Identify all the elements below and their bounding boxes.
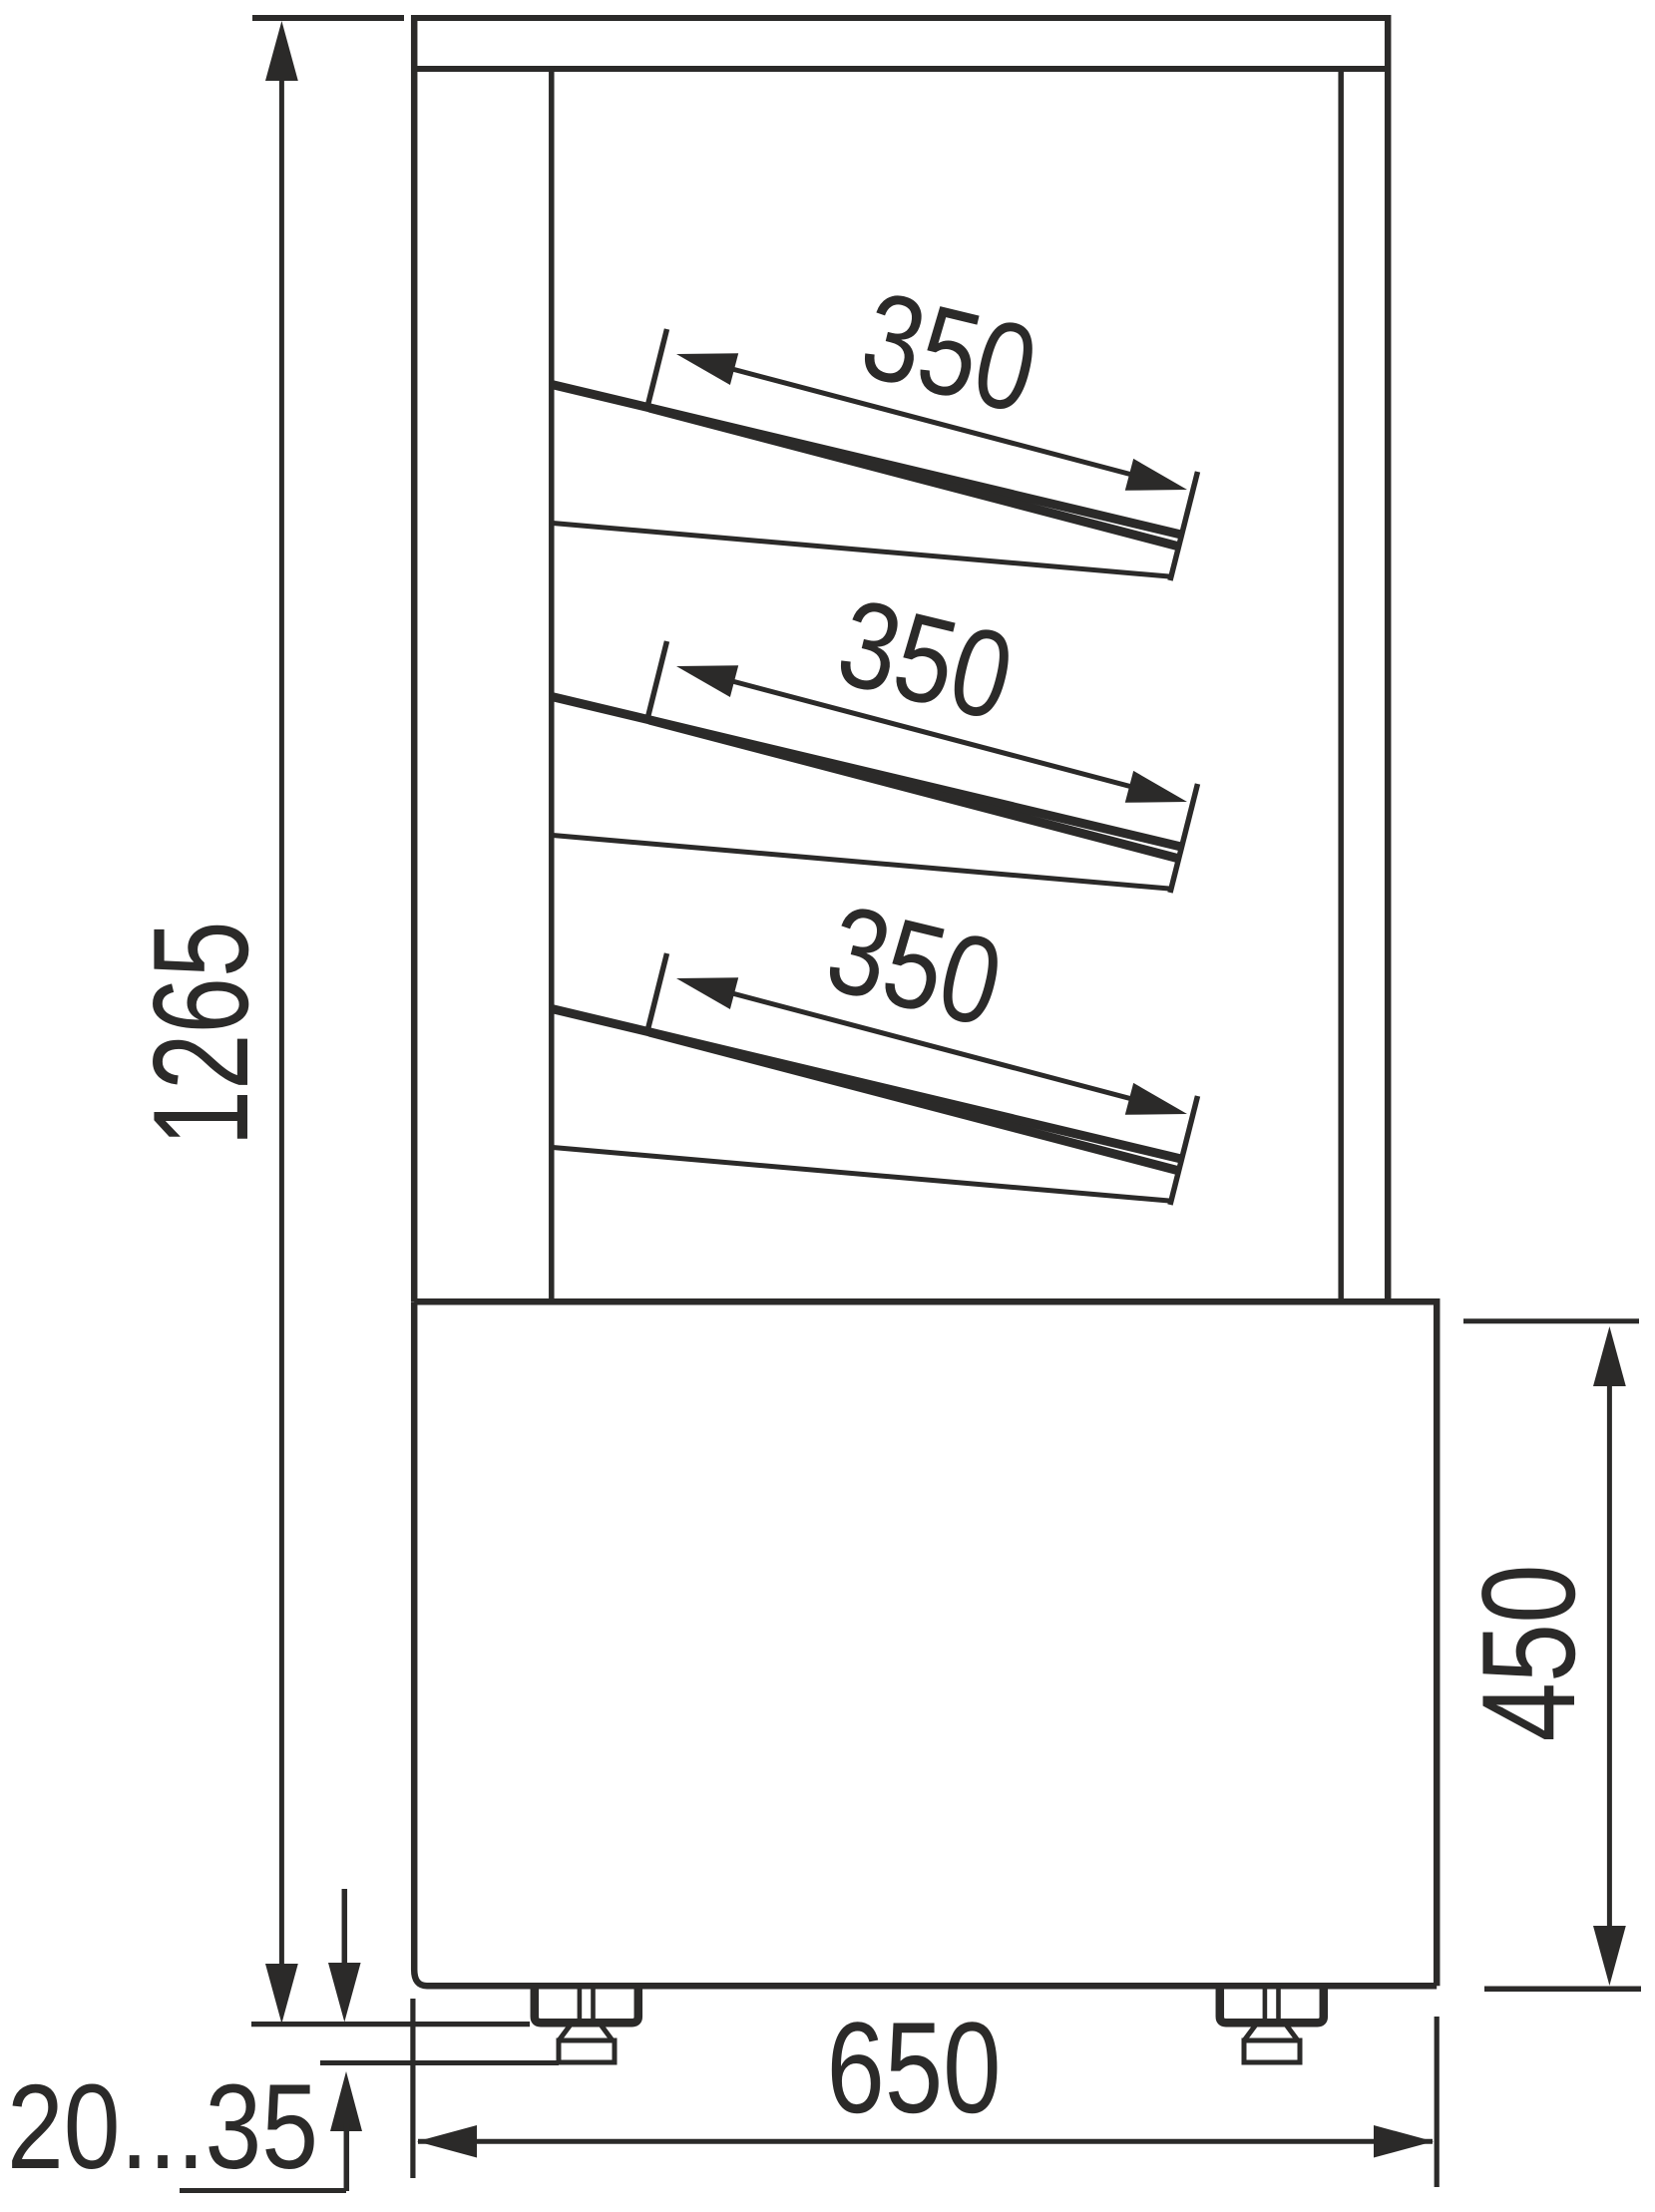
svg-text:1265: 1265 (125, 922, 276, 1147)
svg-text:650: 650 (827, 1995, 1002, 2140)
svg-text:450: 450 (1455, 1565, 1603, 1742)
svg-text:20...35: 20...35 (7, 2058, 318, 2194)
